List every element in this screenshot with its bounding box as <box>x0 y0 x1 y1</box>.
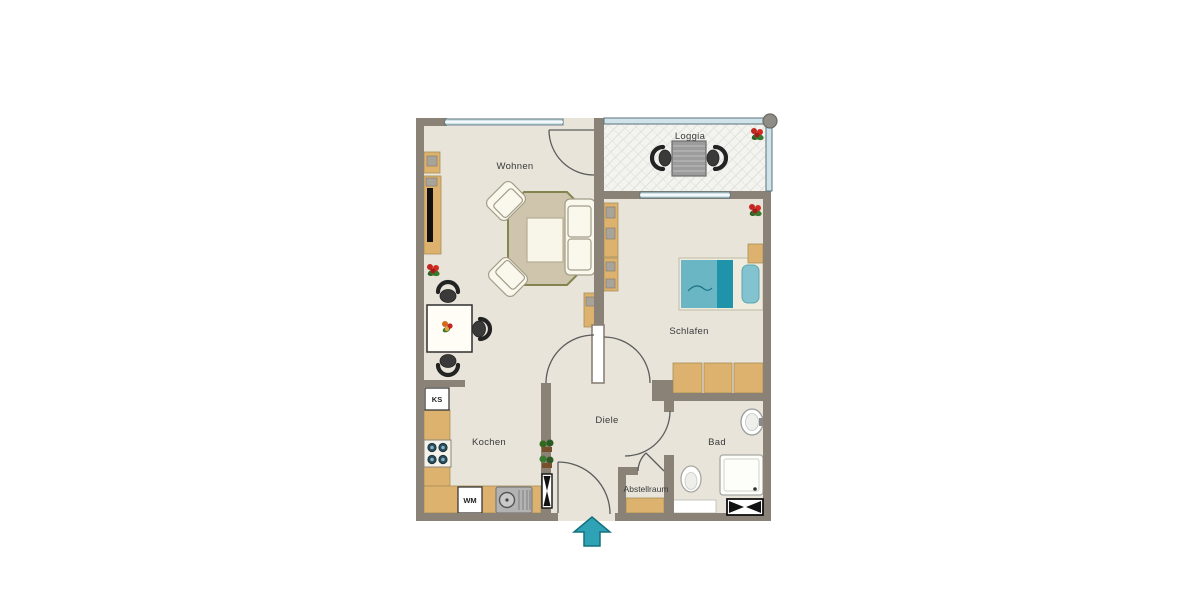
wall-storage-top <box>618 467 638 475</box>
label-loggia: Loggia <box>675 131 706 142</box>
bed-pillow <box>742 265 759 303</box>
sofa-cushion-bottom <box>568 239 591 270</box>
dining-chair-right <box>473 321 486 337</box>
cabinet-small-drawer <box>427 156 437 166</box>
wall-top-a <box>416 118 447 126</box>
counter-left-upper <box>424 410 450 440</box>
dining-chair-top <box>440 290 456 303</box>
shelf-drawer-1 <box>606 207 615 218</box>
sink-drain <box>505 498 508 501</box>
floor-plan-canvas: KS WM <box>0 0 1200 600</box>
vent-symbol-vertical-icon <box>542 474 552 508</box>
stove-top <box>424 440 451 467</box>
wall-bottom-left <box>416 513 558 521</box>
label-schlafen: Schlafen <box>669 326 708 337</box>
bath-sink-basin <box>746 414 759 431</box>
label-bad: Bad <box>708 437 726 448</box>
sideboard-drawer <box>426 178 437 186</box>
floor-plan-page: KS WM <box>0 0 1200 600</box>
washer-label: WM <box>463 496 476 505</box>
coffee-table <box>527 218 563 262</box>
counter-left-lower <box>424 467 450 486</box>
kitchen-sink <box>496 487 532 513</box>
wall-right <box>763 191 771 521</box>
wardrobe-section-1 <box>673 363 702 393</box>
dining-chair-bottom <box>440 355 456 368</box>
wall-divider-vertical <box>594 118 604 325</box>
loggia-rail-right <box>766 125 772 191</box>
loggia-chair-right <box>707 150 719 166</box>
wall-kitchen-stub <box>416 380 465 387</box>
burner-4-center <box>441 458 445 462</box>
sofa <box>565 199 595 275</box>
shelf-drawer-4 <box>606 279 615 288</box>
shelf-drawer-2 <box>606 228 615 239</box>
wardrobe-section-2 <box>704 363 732 393</box>
wall-bedroom-corner <box>652 380 673 394</box>
stove <box>424 440 451 467</box>
burner-1-center <box>430 446 434 450</box>
label-abstellraum: Abstellraum <box>624 484 669 494</box>
label-kochen: Kochen <box>472 437 506 448</box>
burner-2-center <box>441 446 445 450</box>
entrance-arrow-icon <box>574 517 610 546</box>
loggia-door-threshold <box>563 118 594 127</box>
storage-shelf <box>626 498 664 513</box>
shower-drain <box>753 487 757 491</box>
loggia-furniture <box>652 141 726 176</box>
loggia-rail-top <box>604 118 766 124</box>
vent-symbol-horizontal-icon <box>727 499 763 515</box>
shelf-drawer-3 <box>606 262 615 271</box>
wall-left <box>416 118 424 521</box>
cabinet-divider-drawer <box>586 297 595 306</box>
sofa-cushion-top <box>568 206 591 237</box>
toilet-bowl <box>685 473 697 490</box>
bed-blanket <box>681 260 717 308</box>
burner-3-center <box>430 458 434 462</box>
fridge-label: KS <box>432 395 442 404</box>
wardrobe-section-3 <box>734 363 763 393</box>
nightstand <box>748 244 763 263</box>
wall-stub-outline <box>592 325 604 383</box>
tv-screen <box>427 188 433 242</box>
wall-bath-left-stub <box>664 401 674 412</box>
bed-blanket-fold <box>717 260 733 308</box>
wall-bedroom-bottom <box>652 393 763 401</box>
loggia-chair-left <box>659 150 671 166</box>
label-wohnen: Wohnen <box>496 161 533 172</box>
bed <box>679 258 763 310</box>
bath-sink-tap <box>759 418 763 426</box>
bath-sill <box>672 500 716 513</box>
wardrobe <box>673 363 763 393</box>
corner-column <box>763 114 777 128</box>
entrance-threshold <box>558 505 615 521</box>
label-diele: Diele <box>595 415 618 426</box>
